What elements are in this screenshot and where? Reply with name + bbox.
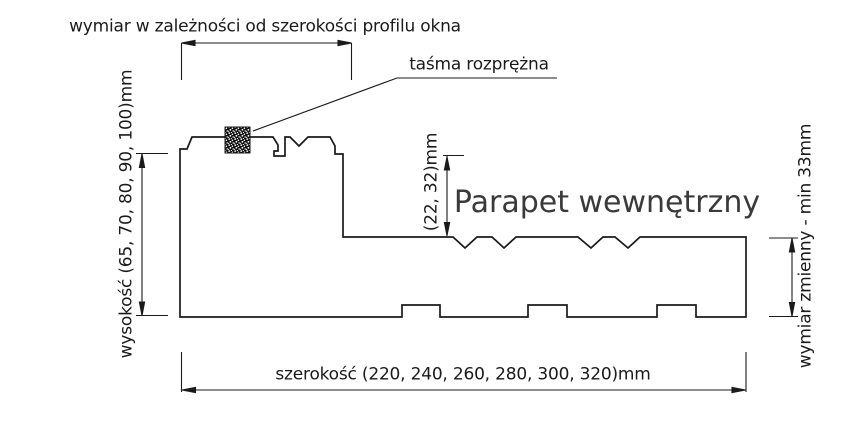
right-dimension-lines	[769, 238, 798, 317]
right-dimension-label: wymiar zmienny - min 33mm	[798, 124, 815, 369]
sill-profile-outline	[180, 137, 746, 317]
top-dimension-lines	[182, 40, 352, 80]
tape-leader-line	[253, 78, 557, 131]
front-edge-dimension-label: (22, 32)mm	[424, 133, 441, 231]
top-dimension-label: wymiar w zależności od szerokości profil…	[69, 19, 461, 36]
width-dimension-label: szerokość (220, 240, 260, 280, 300, 320)…	[275, 367, 650, 384]
height-dimension-lines	[136, 154, 168, 316]
expansion-tape-label: taśma rozprężna	[409, 57, 549, 74]
expansion-tape-block	[225, 127, 250, 153]
subject-title: Parapet wewnętrzny	[454, 188, 760, 218]
technical-drawing-canvas: wymiar w zależności od szerokości profil…	[0, 0, 850, 441]
height-dimension-label: wysokość (65, 70, 80, 90, 100)mm	[119, 70, 136, 359]
